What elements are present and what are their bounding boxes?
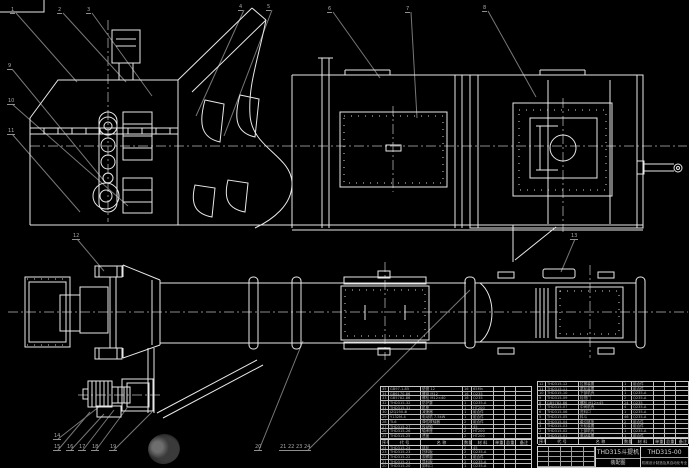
bom-cell	[676, 424, 688, 428]
bom-cell: 2	[463, 460, 472, 464]
bom-cell: 31	[381, 406, 389, 410]
bom-cell	[654, 405, 665, 409]
bom-cell: 24	[381, 446, 389, 450]
bom-cell: 1	[623, 387, 632, 391]
bom-cell	[516, 450, 531, 454]
bom-cell	[654, 401, 665, 405]
bom-cell: 头轮装置	[579, 424, 623, 428]
bom-cell	[494, 450, 505, 454]
bom-cell: 螺栓 M12×40	[421, 396, 463, 400]
bom-cell: 11	[538, 387, 546, 391]
bom-row: 20THD315-20卸料口1Q235-A	[381, 464, 531, 468]
bom-cell: THD315-25	[389, 434, 421, 438]
bom-cell: THD315-01	[546, 434, 579, 438]
bom-cell: 组合件	[472, 455, 494, 459]
bom-cell: 机座	[421, 406, 463, 410]
bom-cell: 拉紧装置	[579, 382, 623, 386]
bom-cell: 8	[538, 401, 546, 405]
bom-cell: 1	[463, 464, 472, 468]
bom-cell: 1	[463, 415, 472, 419]
bom-cell	[516, 446, 531, 450]
revision-cell	[549, 462, 560, 467]
bom-cell	[665, 405, 676, 409]
bom-cell	[516, 410, 531, 414]
bom-cell: 链轮	[421, 446, 463, 450]
bom-cell	[665, 401, 676, 405]
bom-cell: 1	[623, 382, 632, 386]
bom-cell	[676, 420, 688, 424]
bom-cell	[676, 387, 688, 391]
drawing-subtitle: 装配图	[596, 459, 640, 467]
bom-cell	[654, 415, 665, 419]
bom-cell	[654, 410, 665, 414]
bom-cell: THD315-21	[389, 460, 421, 464]
bom-cell: HT200	[472, 406, 494, 410]
bom-cell: 2	[463, 446, 472, 450]
bom-cell: 进料口	[579, 410, 623, 414]
bom-cell	[494, 464, 505, 468]
callout-13: 13	[570, 234, 578, 240]
bom-cell: 组合件	[632, 382, 654, 386]
bom-cell: 轴承座	[421, 429, 463, 433]
bom-cell: 1	[463, 425, 472, 429]
motor-base	[97, 406, 121, 417]
bom-cell	[494, 410, 505, 414]
bom-cell: 序号	[538, 439, 546, 444]
bom-cell	[494, 396, 505, 400]
bom-cell	[494, 455, 505, 459]
drawing-org: 机械设计制造及其自动化专业	[641, 458, 688, 467]
bom-cell: 单重	[494, 440, 505, 445]
bom-cell: 牵引链条	[579, 420, 623, 424]
bom-cell: THD315-12	[546, 382, 579, 386]
bom-cell	[676, 429, 688, 433]
bom-cell	[654, 434, 665, 438]
bom-cell: Q235	[472, 396, 494, 400]
bom-cell: THD315-31	[389, 406, 421, 410]
bom-cell: THD315-26	[389, 429, 421, 433]
bom-cell	[676, 434, 688, 438]
bom-cell: 1	[623, 429, 632, 433]
drawing-number: THD315-00	[641, 447, 688, 458]
bom-cell: 代 号	[546, 439, 579, 444]
callout-15: 15	[53, 445, 61, 451]
bom-cell: 上部机壳	[579, 429, 623, 433]
bom-cell: 备注	[676, 439, 688, 444]
bom-cell: 名 称	[421, 440, 463, 445]
callout-20: 20	[254, 445, 262, 451]
bom-cell	[494, 446, 505, 450]
bom-cell	[665, 424, 676, 428]
bom-cell: 卸料口	[421, 464, 463, 468]
revision-cell	[572, 462, 583, 467]
bom-cell: Q235-A	[472, 401, 494, 405]
bom-table-left: 35GB97.1-85垫圈 121665Mn34GB6170-86螺母 M121…	[380, 386, 532, 468]
bom-cell	[494, 434, 505, 438]
bom-cell: THD315-32	[389, 401, 421, 405]
bom-cell: 28	[381, 420, 389, 424]
bom-cell: 螺母 M12	[421, 392, 463, 396]
bom-cell: 4	[538, 420, 546, 424]
bom-cell: 10	[538, 391, 546, 395]
bom-cell: 总重	[505, 440, 516, 445]
bom-cell	[516, 406, 531, 410]
title-block: THD315斗提机 装配图 THD315-00 机械设计制造及其自动化专业	[537, 446, 689, 468]
bom-cell: 导料板	[421, 460, 463, 464]
revision-cell	[561, 462, 572, 467]
bom-cell: 组合件	[632, 434, 654, 438]
bom-cell: 中间机壳	[579, 405, 623, 409]
frame-corner	[0, 0, 44, 12]
bom-cell	[516, 434, 531, 438]
bom-cell: 组合件	[472, 410, 494, 414]
cad-drawing-sheet: 123456789101112131415161718192021222324 …	[0, 0, 689, 468]
bom-cell	[505, 455, 516, 459]
bom-cell: 下部机壳	[579, 391, 623, 395]
bom-cell: 1	[463, 406, 472, 410]
bom-cell: 防护罩	[421, 401, 463, 405]
bom-cell: 30	[381, 410, 389, 414]
bom-cell: 螺栓 M12×45	[579, 401, 623, 405]
bom-cell: 2	[538, 429, 546, 433]
bucket-profile	[237, 95, 259, 137]
bom-cell: GB5782-86	[389, 396, 421, 400]
bom-cell: 数量	[463, 440, 472, 445]
bom-cell: 驱动装置	[579, 434, 623, 438]
bom-cell: 传动轴	[421, 425, 463, 429]
bom-cell	[516, 387, 531, 391]
bom-cell: HT200	[472, 429, 494, 433]
bom-cell	[665, 387, 676, 391]
bom-cell: 检视门	[579, 396, 623, 400]
bom-cell: 4	[623, 405, 632, 409]
bom-cell: 23	[381, 450, 389, 454]
callout-12: 12	[72, 234, 80, 240]
callout-16: 16	[66, 445, 74, 451]
callout-3: 3	[86, 8, 91, 14]
bom-cell: THD315-07	[546, 405, 579, 409]
bom-cell: GB97.1-85	[389, 387, 421, 391]
bom-cell	[665, 434, 676, 438]
bom-cell	[676, 405, 688, 409]
bom-cell: 21	[381, 460, 389, 464]
bom-cell: 挡料板	[421, 450, 463, 454]
bom-cell: Q235	[632, 401, 654, 405]
bom-cell	[505, 406, 516, 410]
bom-cell: 29	[381, 415, 389, 419]
bom-cell: 2	[463, 450, 472, 454]
head-gearbox	[80, 287, 108, 333]
bom-cell	[494, 420, 505, 424]
bom-cell: THD315-20	[389, 464, 421, 468]
bom-cell	[654, 420, 665, 424]
bom-cell: 序号	[381, 440, 389, 445]
revision-cell	[584, 462, 595, 467]
bom-cell: Q235-A	[472, 450, 494, 454]
bom-cell: 24	[623, 401, 632, 405]
bom-cell: 26	[381, 429, 389, 433]
bom-cell: 35	[381, 387, 389, 391]
bom-cell: THD315-06	[546, 410, 579, 414]
revision-grid	[538, 447, 596, 467]
bom-cell: 2	[463, 429, 472, 433]
bom-cell: 5	[538, 415, 546, 419]
bom-cell	[505, 420, 516, 424]
callout-19: 19	[109, 445, 117, 451]
bom-cell	[665, 382, 676, 386]
bom-cell	[505, 410, 516, 414]
bom-cell: Q235-A	[632, 391, 654, 395]
bom-cell: THD315-22	[389, 455, 421, 459]
callout-7: 7	[405, 7, 410, 13]
bom-cell: 1	[463, 410, 472, 414]
bom-cell: 45	[472, 446, 494, 450]
bom-cell: 弹性联轴器	[421, 420, 463, 424]
bom-cell: 16	[463, 392, 472, 396]
bom-cell	[516, 425, 531, 429]
bom-cell	[516, 429, 531, 433]
bom-cell	[654, 424, 665, 428]
bom-cell: 备注	[516, 440, 531, 445]
bom-header-row: 序号代 号名 称数量材 料单重总重备注	[381, 439, 531, 446]
bom-cell: 33	[381, 396, 389, 400]
bom-cell	[676, 396, 688, 400]
bom-cell: 1	[538, 434, 546, 438]
bom-cell: Q235-A	[632, 429, 654, 433]
callout-24: 24	[303, 445, 311, 451]
bom-cell: 组合件	[472, 415, 494, 419]
takeup-screw-end	[674, 164, 682, 172]
bom-cell	[516, 401, 531, 405]
bom-cell	[676, 382, 688, 386]
bom-cell: THD315-03	[546, 424, 579, 428]
revision-cell	[538, 462, 549, 467]
bom-cell: 电动机 7.5kW	[421, 415, 463, 419]
bom-cell: 代 号	[389, 440, 421, 445]
bom-cell: 尾轮装置	[579, 387, 623, 391]
callout-11: 11	[7, 129, 15, 135]
bom-cell	[505, 460, 516, 464]
bom-cell	[516, 460, 531, 464]
callout-4: 4	[238, 5, 243, 11]
callout-5: 5	[266, 5, 271, 11]
elevation-view	[0, 0, 682, 230]
bom-cell: 2	[623, 396, 632, 400]
bom-cell	[665, 391, 676, 395]
callout-14: 14	[53, 434, 61, 440]
bom-cell: 材 料	[632, 439, 654, 444]
bom-cell: 观察窗	[421, 455, 463, 459]
bom-cell: Q235-A	[472, 464, 494, 468]
bom-cell: 组合件	[472, 420, 494, 424]
bom-cell: 9	[538, 396, 546, 400]
bom-cell: 总重	[665, 439, 676, 444]
bom-cell: HT200	[472, 434, 494, 438]
bom-cell: THD315-24	[389, 446, 421, 450]
bom-cell: THD315-23	[389, 450, 421, 454]
bom-cell	[494, 460, 505, 464]
bom-cell	[505, 464, 516, 468]
bom-cell: 1	[623, 391, 632, 395]
bom-cell	[665, 410, 676, 414]
bom-cell: THD315-10	[546, 391, 579, 395]
bom-cell	[676, 401, 688, 405]
bom-cell: 32	[381, 401, 389, 405]
bom-cell	[505, 392, 516, 396]
bom-cell: 1	[623, 424, 632, 428]
bom-cell: Q235-A	[632, 405, 654, 409]
bom-cell: 25	[381, 434, 389, 438]
bom-cell	[516, 464, 531, 468]
bom-cell	[494, 406, 505, 410]
bom-cell: 7	[538, 405, 546, 409]
bom-cell: Q235-A	[632, 415, 654, 419]
bom-cell	[676, 391, 688, 395]
bom-cell: Q235-A	[472, 460, 494, 464]
bom-cell: 1	[463, 401, 472, 405]
bom-cell	[654, 396, 665, 400]
bom-cell: 透盖	[421, 434, 463, 438]
bom-cell: 1	[463, 455, 472, 459]
bom-cell: 数量	[623, 439, 632, 444]
bom-cell: THD315-27	[389, 425, 421, 429]
bom-cell: 20	[381, 464, 389, 468]
bom-cell	[654, 387, 665, 391]
bom-cell	[665, 396, 676, 400]
bom-cell	[505, 429, 516, 433]
bom-cell: 单重	[654, 439, 665, 444]
bom-cell: 1	[623, 410, 632, 414]
bom-cell	[494, 387, 505, 391]
bom-cell: THD315-09	[546, 396, 579, 400]
bom-cell	[505, 387, 516, 391]
bom-cell	[505, 425, 516, 429]
callout-8: 8	[482, 6, 487, 12]
drawing-title: THD315斗提机	[596, 447, 640, 459]
bom-cell: 1	[623, 434, 632, 438]
bom-cell: 3	[538, 424, 546, 428]
bom-cell	[505, 415, 516, 419]
bom-cell	[505, 450, 516, 454]
callout-18: 18	[91, 445, 99, 451]
bom-cell: 34	[381, 392, 389, 396]
bom-cell: 材 料	[472, 440, 494, 445]
bom-cell	[654, 382, 665, 386]
callout-17: 17	[78, 445, 86, 451]
bom-cell	[676, 415, 688, 419]
bom-cell: 65Mn	[472, 387, 494, 391]
bom-cell: THD315-02	[546, 429, 579, 433]
bom-cell: Q235-A	[632, 410, 654, 414]
bom-cell	[654, 429, 665, 433]
bom-cell: 2	[463, 434, 472, 438]
bom-cell	[505, 396, 516, 400]
bom-cell: 45	[472, 425, 494, 429]
bom-cell	[676, 410, 688, 414]
bom-cell	[505, 401, 516, 405]
bom-cell	[505, 446, 516, 450]
callout-2: 2	[57, 8, 62, 14]
bom-header-row: 序号代 号名 称数量材 料单重总重备注	[538, 438, 688, 445]
bom-cell: JZQ250-Ⅲ	[389, 410, 421, 414]
bom-cell	[516, 396, 531, 400]
casing-flange	[249, 277, 258, 349]
bom-cell: 组合件	[632, 420, 654, 424]
bom-cell: 22	[381, 455, 389, 459]
callout-9: 9	[7, 64, 12, 70]
bom-cell	[516, 455, 531, 459]
bom-cell	[654, 391, 665, 395]
bom-cell	[665, 420, 676, 424]
bom-cell: 16	[463, 387, 472, 391]
bom-cell: THD315-11	[546, 387, 579, 391]
bom-cell	[494, 415, 505, 419]
bom-cell	[516, 392, 531, 396]
bom-cell: Q235	[472, 392, 494, 396]
bom-cell: 垫圈 12	[421, 387, 463, 391]
bucket-profile	[202, 100, 224, 142]
bom-cell	[505, 434, 516, 438]
bom-cell: 减速器	[421, 410, 463, 414]
bom-cell: TL6	[389, 420, 421, 424]
bom-cell	[665, 415, 676, 419]
callout-6: 6	[327, 7, 332, 13]
bom-cell: THD315-05	[546, 415, 579, 419]
casing-flange	[292, 277, 301, 349]
bom-cell: 46	[623, 415, 632, 419]
bom-table-right: 12THD315-12拉紧装置1组合件11THD315-11尾轮装置1组合件10…	[537, 381, 689, 444]
bom-cell	[494, 429, 505, 433]
bom-cell: GB6170-86	[389, 392, 421, 396]
bom-cell	[665, 429, 676, 433]
bom-cell: 16	[463, 396, 472, 400]
bom-cell: 2	[463, 420, 472, 424]
bom-cell	[494, 425, 505, 429]
bom-cell	[494, 401, 505, 405]
bom-cell: 6	[538, 410, 546, 414]
callout-1: 1	[10, 8, 15, 14]
bom-cell: THD315-04	[546, 420, 579, 424]
bom-cell: Q235-A	[632, 396, 654, 400]
bucket-profile	[226, 180, 248, 212]
callout-10: 10	[7, 99, 15, 105]
bom-cell: 12	[538, 382, 546, 386]
bom-cell	[516, 415, 531, 419]
bom-cell: 27	[381, 425, 389, 429]
bom-cell	[516, 420, 531, 424]
bom-cell: GB5782-86	[546, 401, 579, 405]
bom-cell: 料斗	[579, 415, 623, 419]
bom-cell: 组合件	[632, 387, 654, 391]
bom-cell: 组合件	[632, 424, 654, 428]
bom-cell: Y132M-4	[389, 415, 421, 419]
bom-cell: 2	[623, 420, 632, 424]
bucket-profile	[193, 185, 215, 217]
bom-cell	[494, 392, 505, 396]
bom-cell: 名 称	[579, 439, 623, 444]
